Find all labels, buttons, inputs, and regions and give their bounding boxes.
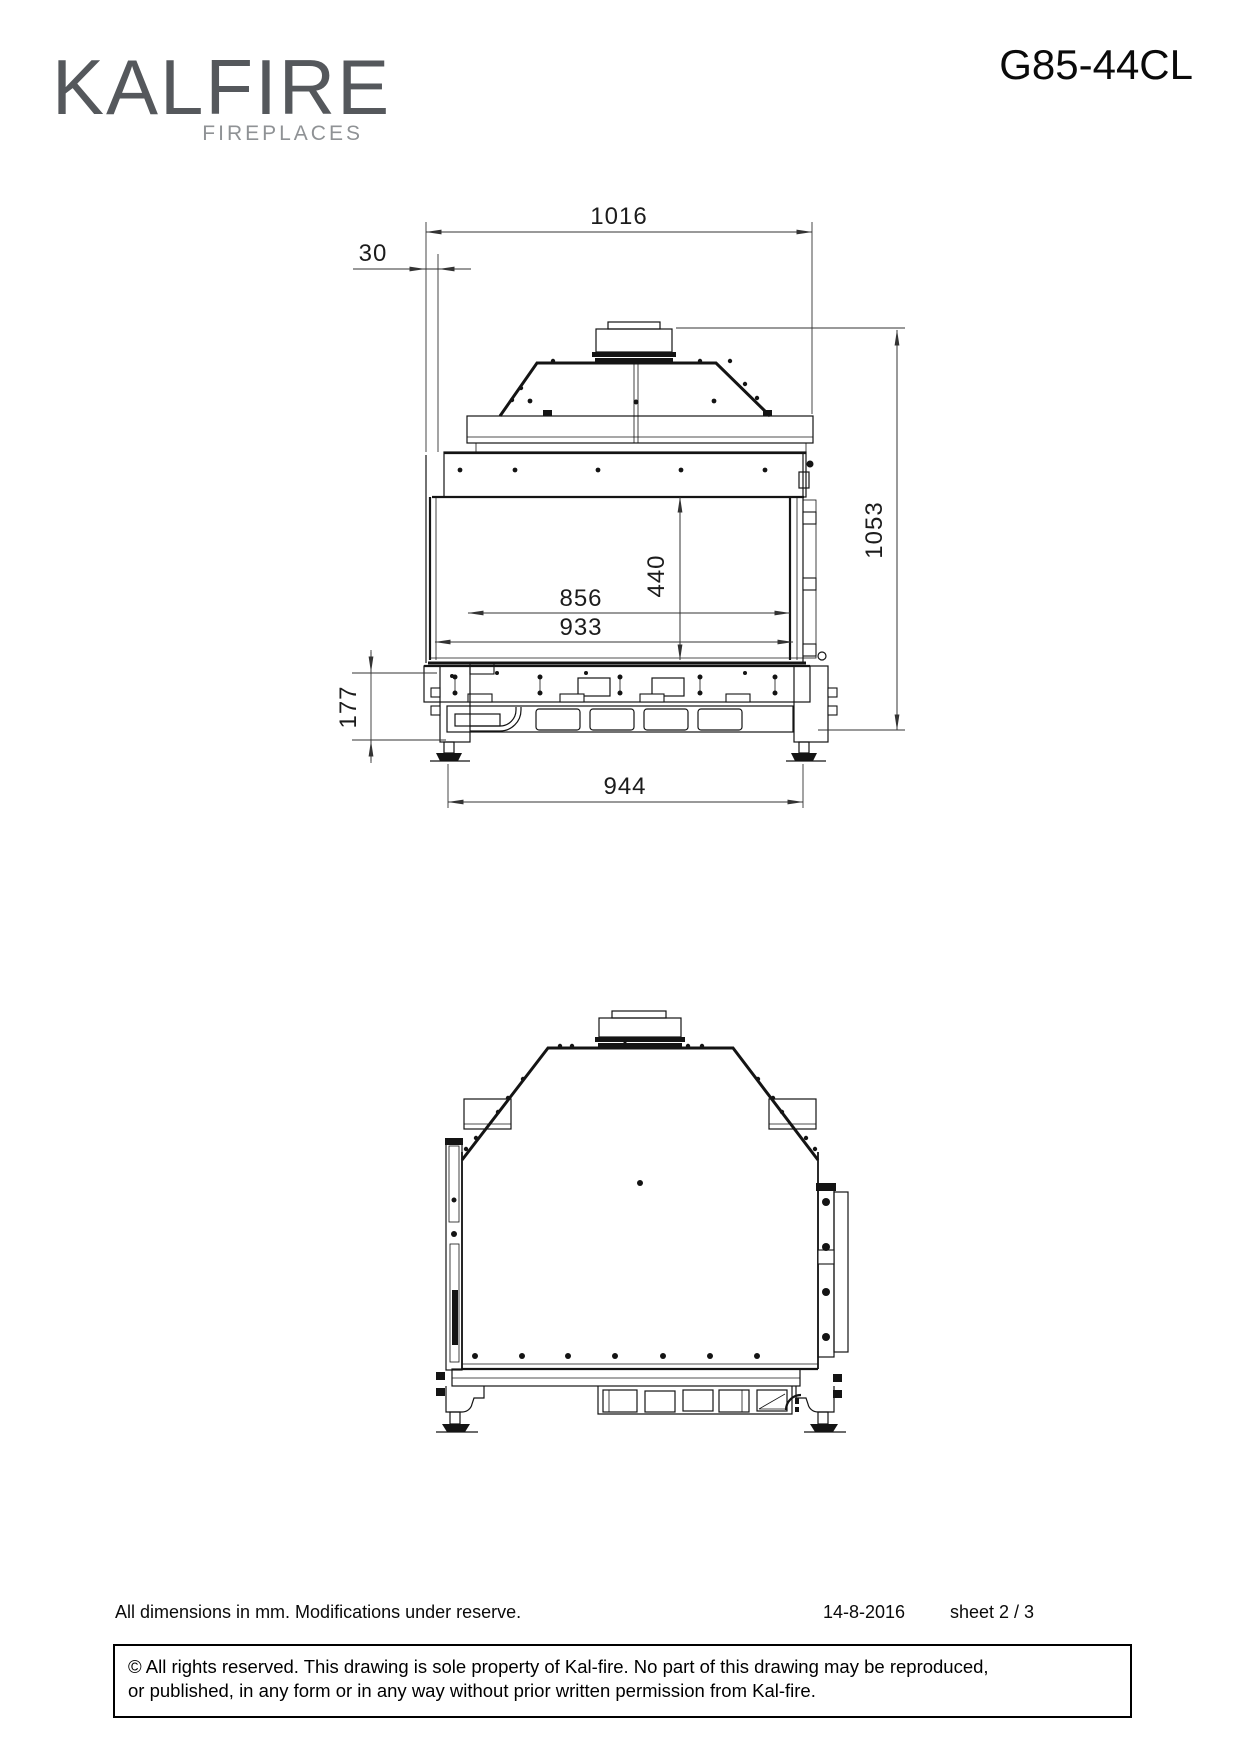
dim-total-width: 1016 [590,203,647,230]
front-view-dimensions: 1016 30 856 933 440 177 944 1053 [335,203,905,808]
copyright-box: © All rights reserved. This drawing is s… [113,1644,1132,1718]
rear-hood-screws [464,1042,817,1151]
copyright-line-2: or published, in any form or in any way … [128,1679,1117,1703]
dim-total-height: 1053 [861,501,888,558]
rear-view-drawing [436,1011,848,1432]
frame-screws [458,468,768,473]
base-bolts [453,671,778,696]
brand-tagline: FIREPLACES [202,122,363,145]
dimensions-note: All dimensions in mm. Modifications unde… [115,1602,521,1623]
rear-bottom-screws [472,1353,760,1359]
front-view-drawing [424,322,837,761]
copyright-line-1: © All rights reserved. This drawing is s… [128,1655,1117,1679]
drawing-date: 14-8-2016 [823,1602,905,1623]
model-number: G85-44CL [999,41,1193,88]
brand-logo: KALFIRE FIREPLACES [52,43,391,145]
hood-screws [510,359,759,404]
sheet-canvas: KALFIRE FIREPLACES G85-44CL [0,0,1241,1754]
dim-base-height: 177 [335,685,362,728]
brand-wordmark: KALFIRE [52,43,391,131]
dim-feet-span: 944 [603,773,646,800]
dim-glass-width: 933 [559,614,602,641]
drawing-sheet: KALFIRE FIREPLACES G85-44CL [0,0,1241,1754]
dim-opening-width: 856 [559,585,602,612]
dim-door-height: 440 [643,554,670,597]
dim-front-offset: 30 [359,240,388,267]
sheet-number: sheet 2 / 3 [950,1602,1034,1623]
